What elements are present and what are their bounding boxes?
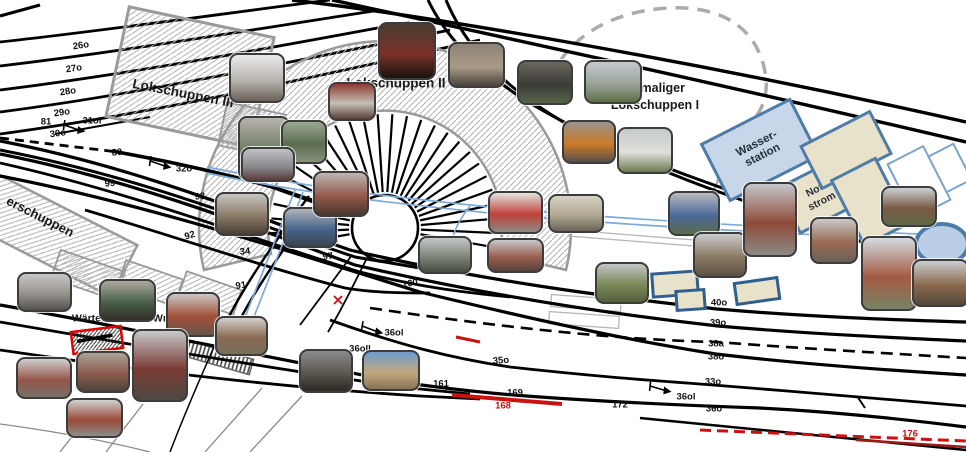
photo-signal-box bbox=[16, 357, 72, 399]
photo-brick-building-door bbox=[313, 171, 369, 217]
switch-symbol bbox=[649, 381, 672, 395]
photo-signal-box-closeup bbox=[132, 329, 188, 402]
photo-water-tower bbox=[861, 236, 917, 311]
photo-brick-row-building bbox=[487, 238, 544, 273]
track-label-168: 168 bbox=[495, 401, 511, 411]
photo-office-room bbox=[548, 194, 604, 233]
photo-dark-shed-corridor bbox=[517, 60, 573, 105]
track-label-33o: 33o bbox=[705, 377, 721, 387]
track-label-100: 100 bbox=[401, 278, 418, 290]
track-label-34: 34 bbox=[239, 247, 251, 258]
track-label-98: 98 bbox=[194, 192, 206, 203]
photo-low-building-grass bbox=[881, 186, 937, 227]
photo-room-red-chairs bbox=[488, 191, 543, 234]
photo-orange-digger-shed bbox=[562, 120, 616, 164]
track-label-36ol: 36ol bbox=[384, 328, 403, 338]
track-label-30o: 30o bbox=[49, 128, 67, 140]
track-label-172: 172 bbox=[612, 400, 628, 410]
photo-straight-track-view bbox=[693, 232, 747, 278]
trackplan-map: Lokschuppen III Lokschuppen II ehemalige… bbox=[0, 0, 966, 452]
track-label-169: 169 bbox=[507, 388, 523, 398]
photo-steel-frame-field bbox=[584, 60, 642, 104]
track-label-36ol: 36ol bbox=[676, 392, 695, 402]
photo-green-machines-room bbox=[99, 279, 156, 322]
photo-white-column-grass bbox=[617, 127, 673, 174]
photo-gantry-tracks bbox=[912, 259, 966, 307]
photo-large-brick-building bbox=[743, 182, 797, 257]
track-label-26o: 26o bbox=[72, 40, 90, 52]
track-label-97: 97 bbox=[322, 252, 334, 263]
track-label-39o: 39o bbox=[710, 318, 726, 328]
track-label-28o: 28o bbox=[59, 86, 77, 98]
track-label-38a: 38a bbox=[708, 339, 724, 349]
track-label-38o: 38o bbox=[708, 352, 724, 362]
photo-red-roof-building bbox=[66, 398, 123, 438]
track-label-31ol: 31ol bbox=[82, 116, 101, 126]
track-label-99: 99 bbox=[104, 179, 116, 190]
photo-dark-platform-train bbox=[299, 349, 353, 393]
photo-street-buildings bbox=[810, 217, 858, 264]
photo-sky-platform-panorama bbox=[362, 350, 420, 391]
track-label-91: 91 bbox=[235, 280, 247, 291]
track-label-35o: 35o bbox=[493, 356, 510, 367]
waerterstellwerk-marker bbox=[71, 326, 123, 354]
photo-platform-street bbox=[17, 272, 72, 312]
photo-blue-machinery bbox=[668, 191, 720, 236]
photo-street-red-car bbox=[241, 147, 295, 182]
track-label-36o: 36o bbox=[706, 404, 722, 414]
track-label-29o: 29o bbox=[53, 107, 71, 119]
photo-workshop-table bbox=[448, 42, 505, 88]
track-label-40o: 40o bbox=[711, 298, 727, 308]
tan-box-l2 bbox=[674, 288, 706, 312]
photo-museum-corridor bbox=[229, 53, 285, 103]
track-label-161: 161 bbox=[433, 379, 449, 389]
track-label-176: 176 bbox=[902, 429, 918, 439]
track-label-81: 81 bbox=[41, 117, 52, 127]
track-label-32o: 32o bbox=[176, 164, 192, 174]
photo-yard-tracks bbox=[418, 236, 472, 274]
track-label-27o: 27o bbox=[65, 63, 83, 75]
photo-house-with-trees bbox=[215, 192, 269, 236]
photo-lever-frame bbox=[76, 351, 130, 393]
photo-grass-path-buildings bbox=[595, 262, 649, 304]
photo-brown-building bbox=[215, 316, 268, 356]
photo-shed-interior-red-loco bbox=[378, 22, 436, 80]
track-label-80: 80 bbox=[111, 148, 123, 159]
photo-red-wall-interior bbox=[328, 82, 376, 121]
